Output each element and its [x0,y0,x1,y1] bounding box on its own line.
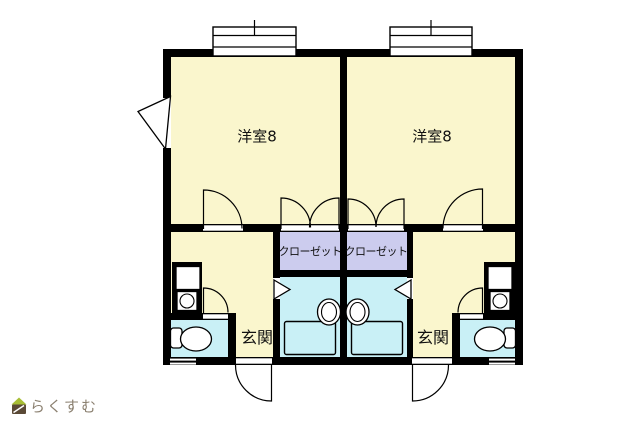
right-entrance-label: 玄関 [417,324,449,348]
kitchen-sink-icon [172,262,202,313]
left-closet-label: クローゼット [279,243,342,259]
left-main-room-label: 洋室8 [237,126,277,147]
window-icon [213,20,296,56]
rakusumu-logo-icon [12,398,27,415]
left-entrance-label: 玄関 [241,324,273,348]
toilet-icon [475,327,516,351]
right-main-room-label: 洋室8 [412,126,452,147]
floorplan-image: 洋室8 洋室8 クローゼット クローゼット 玄関 玄関 らくすむ [0,0,640,425]
floorplan-drawing [0,0,640,425]
toilet-icon [171,327,212,351]
right-closet-label: クローゼット [345,243,408,259]
kitchen-sink-icon [484,262,515,313]
exterior-door-leaf-icon [138,97,171,150]
window-icon [390,20,472,56]
watermark-text: らくすむ [30,396,98,417]
